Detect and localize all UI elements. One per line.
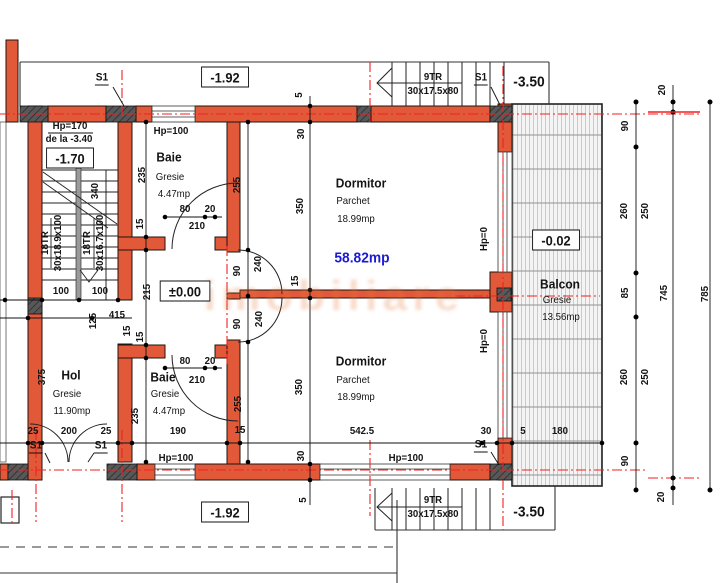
site-contours [0,62,555,583]
stairs-exterior-top [377,62,504,106]
stairs-exterior-bottom [377,488,490,530]
stairs-interior [42,168,118,300]
watermark: imobiliare [204,272,551,320]
floor-plan-sheet: imobiliare S1-1.929TR30x17.5x80S1-3.5020… [0,0,720,583]
